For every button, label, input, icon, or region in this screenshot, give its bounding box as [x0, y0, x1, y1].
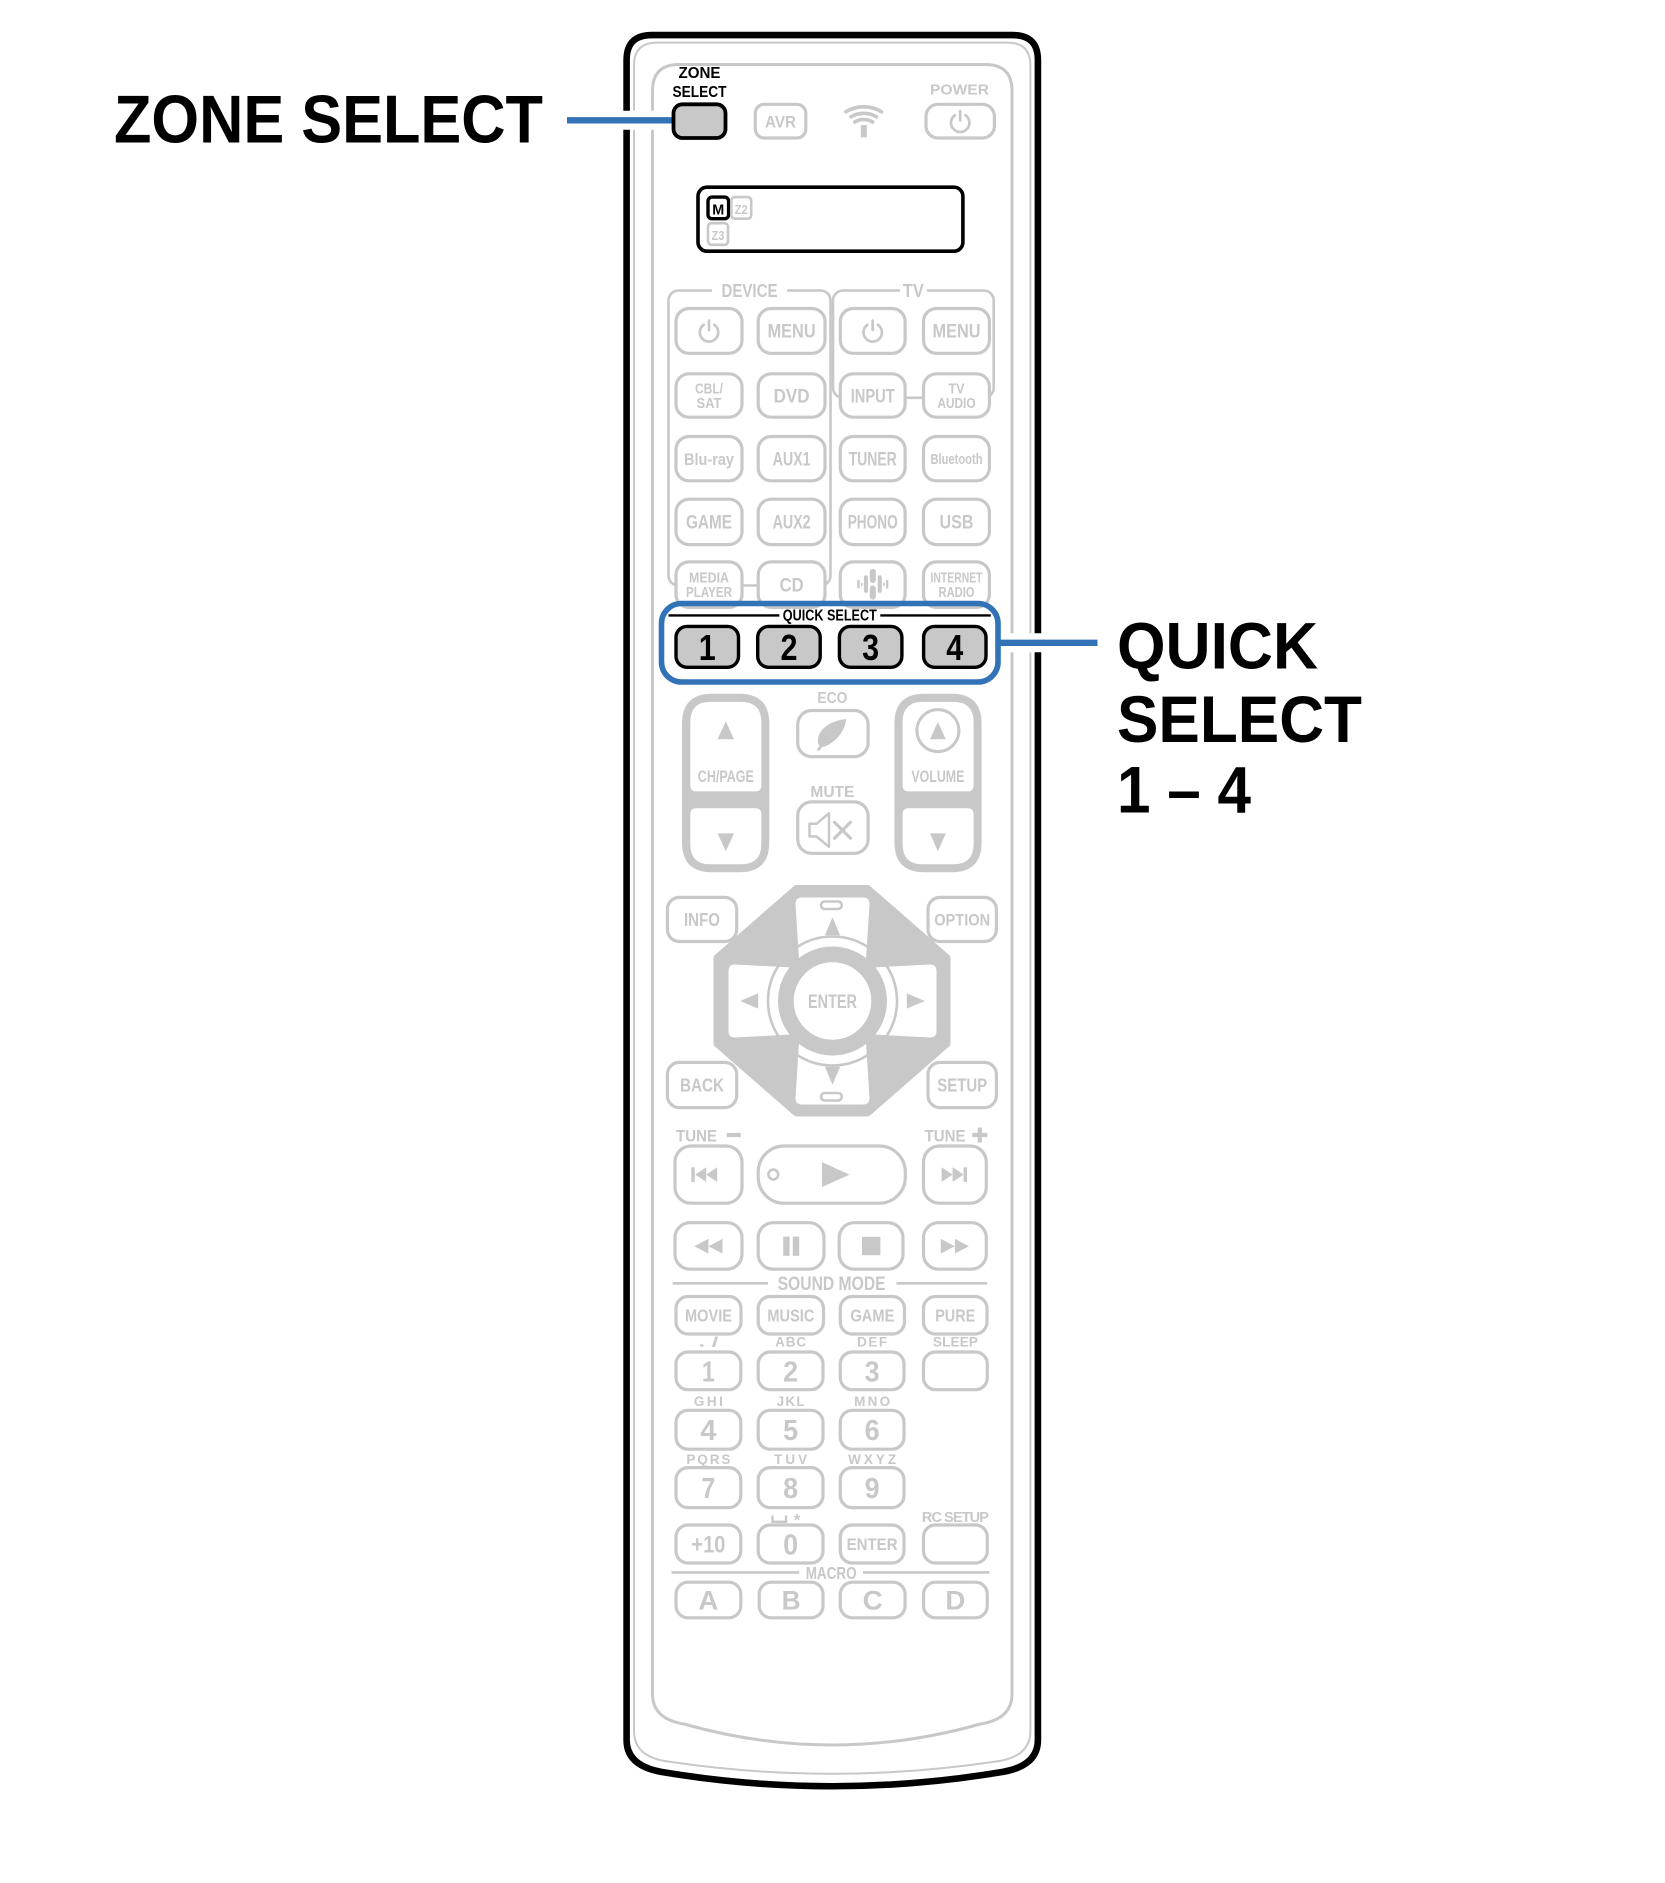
svg-text:TUNE: TUNE — [925, 1127, 966, 1146]
svg-text:2: 2 — [783, 1356, 798, 1388]
svg-text:CH/PAGE: CH/PAGE — [698, 768, 754, 786]
svg-text:DEVICE: DEVICE — [722, 280, 778, 301]
svg-text:Z2: Z2 — [735, 202, 748, 217]
svg-text:SETUP: SETUP — [937, 1076, 987, 1096]
svg-text:MENU: MENU — [933, 322, 981, 343]
svg-text:0: 0 — [783, 1529, 798, 1561]
svg-text:4: 4 — [700, 1415, 716, 1447]
svg-text:ECO: ECO — [817, 690, 847, 707]
svg-text:AVR: AVR — [765, 112, 796, 131]
svg-text:7: 7 — [701, 1473, 715, 1505]
svg-text:INFO: INFO — [684, 910, 720, 930]
svg-text:PURE: PURE — [935, 1306, 975, 1326]
svg-text:MUTE: MUTE — [810, 784, 854, 801]
svg-text:MENU: MENU — [768, 322, 816, 343]
svg-text:SAT: SAT — [697, 396, 722, 412]
svg-text:PHONO: PHONO — [848, 513, 898, 534]
svg-text:SLEEP: SLEEP — [933, 1335, 978, 1350]
svg-text:TV: TV — [903, 280, 925, 301]
svg-text:AUX1: AUX1 — [773, 450, 811, 471]
svg-text:QUICK: QUICK — [1117, 609, 1318, 683]
svg-text:OPTION: OPTION — [934, 911, 990, 930]
svg-text:USB: USB — [940, 513, 974, 534]
svg-text:AUDIO: AUDIO — [938, 396, 976, 412]
svg-text:SELECT: SELECT — [673, 84, 727, 101]
svg-text:1 – 4: 1 – 4 — [1117, 753, 1251, 827]
svg-text:+10: +10 — [691, 1532, 725, 1559]
svg-text:1: 1 — [702, 1356, 715, 1388]
svg-text:CD: CD — [780, 576, 804, 597]
svg-text:TUNE: TUNE — [676, 1127, 717, 1146]
svg-text:GAME: GAME — [850, 1306, 894, 1326]
svg-text:DVD: DVD — [774, 386, 810, 407]
svg-text:VOLUME: VOLUME — [911, 768, 964, 786]
svg-text:SOUND MODE: SOUND MODE — [778, 1273, 886, 1295]
svg-text:BACK: BACK — [680, 1076, 724, 1096]
svg-text:ZONE: ZONE — [679, 65, 721, 82]
svg-text:DEF: DEF — [857, 1335, 887, 1350]
svg-text:. /: . / — [698, 1335, 718, 1350]
svg-text:POWER: POWER — [930, 82, 990, 98]
svg-text:ENTER: ENTER — [847, 1535, 898, 1554]
svg-text:ABC: ABC — [775, 1335, 806, 1350]
svg-text:TUV: TUV — [774, 1452, 807, 1467]
svg-text:Bluetooth: Bluetooth — [931, 451, 983, 468]
svg-text:4: 4 — [946, 627, 963, 668]
svg-text:TUNER: TUNER — [849, 450, 897, 471]
svg-text:Z3: Z3 — [712, 228, 725, 243]
svg-text:5: 5 — [783, 1415, 798, 1447]
svg-text:MACRO: MACRO — [806, 1563, 857, 1583]
svg-text:GAME: GAME — [686, 513, 732, 534]
svg-text:AUX2: AUX2 — [773, 513, 811, 534]
svg-text:PLAYER: PLAYER — [686, 585, 732, 601]
svg-text:C: C — [863, 1586, 883, 1616]
svg-text:B: B — [782, 1586, 801, 1616]
svg-text:MOVIE: MOVIE — [685, 1306, 732, 1326]
svg-text:1: 1 — [699, 627, 716, 668]
svg-text:JKL: JKL — [777, 1394, 805, 1409]
svg-text:QUICK SELECT: QUICK SELECT — [783, 607, 877, 624]
svg-text:6: 6 — [865, 1415, 880, 1447]
svg-text:A: A — [698, 1586, 718, 1616]
svg-text:8: 8 — [783, 1473, 798, 1505]
svg-text:GHI: GHI — [694, 1394, 723, 1409]
svg-text:3: 3 — [862, 627, 879, 668]
svg-text:MUSIC: MUSIC — [767, 1306, 814, 1326]
svg-text:D: D — [945, 1586, 965, 1616]
svg-text:3: 3 — [865, 1356, 880, 1388]
svg-text:ZONE SELECT: ZONE SELECT — [114, 82, 543, 158]
svg-text:WXYZ: WXYZ — [848, 1452, 896, 1467]
svg-text:RADIO: RADIO — [939, 585, 975, 601]
svg-text:9: 9 — [865, 1473, 880, 1505]
svg-text:SELECT: SELECT — [1117, 682, 1362, 756]
svg-text:M: M — [712, 201, 724, 218]
svg-text:MNO: MNO — [854, 1394, 890, 1409]
svg-text:2: 2 — [781, 627, 798, 668]
svg-text:Blu-ray: Blu-ray — [684, 450, 734, 469]
svg-text:INPUT: INPUT — [851, 386, 895, 407]
svg-text:ENTER: ENTER — [808, 992, 857, 1013]
